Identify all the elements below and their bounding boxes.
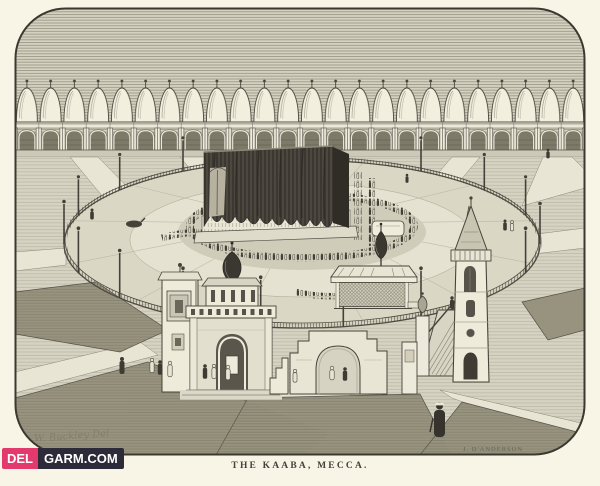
kaaba-door-curtain [209, 167, 226, 217]
arcade-colonnade [15, 78, 585, 157]
scanned-engraving-page: W. Buckley Del J. D'ANDERSON DEL GARM.CO… [0, 0, 600, 486]
kaaba [194, 146, 358, 243]
engraving-scene [0, 0, 600, 486]
maqam-station [372, 221, 404, 236]
engraver-signature: J. D'ANDERSON [463, 446, 523, 453]
caption-title: THE KAABA, MECCA. [0, 461, 600, 471]
